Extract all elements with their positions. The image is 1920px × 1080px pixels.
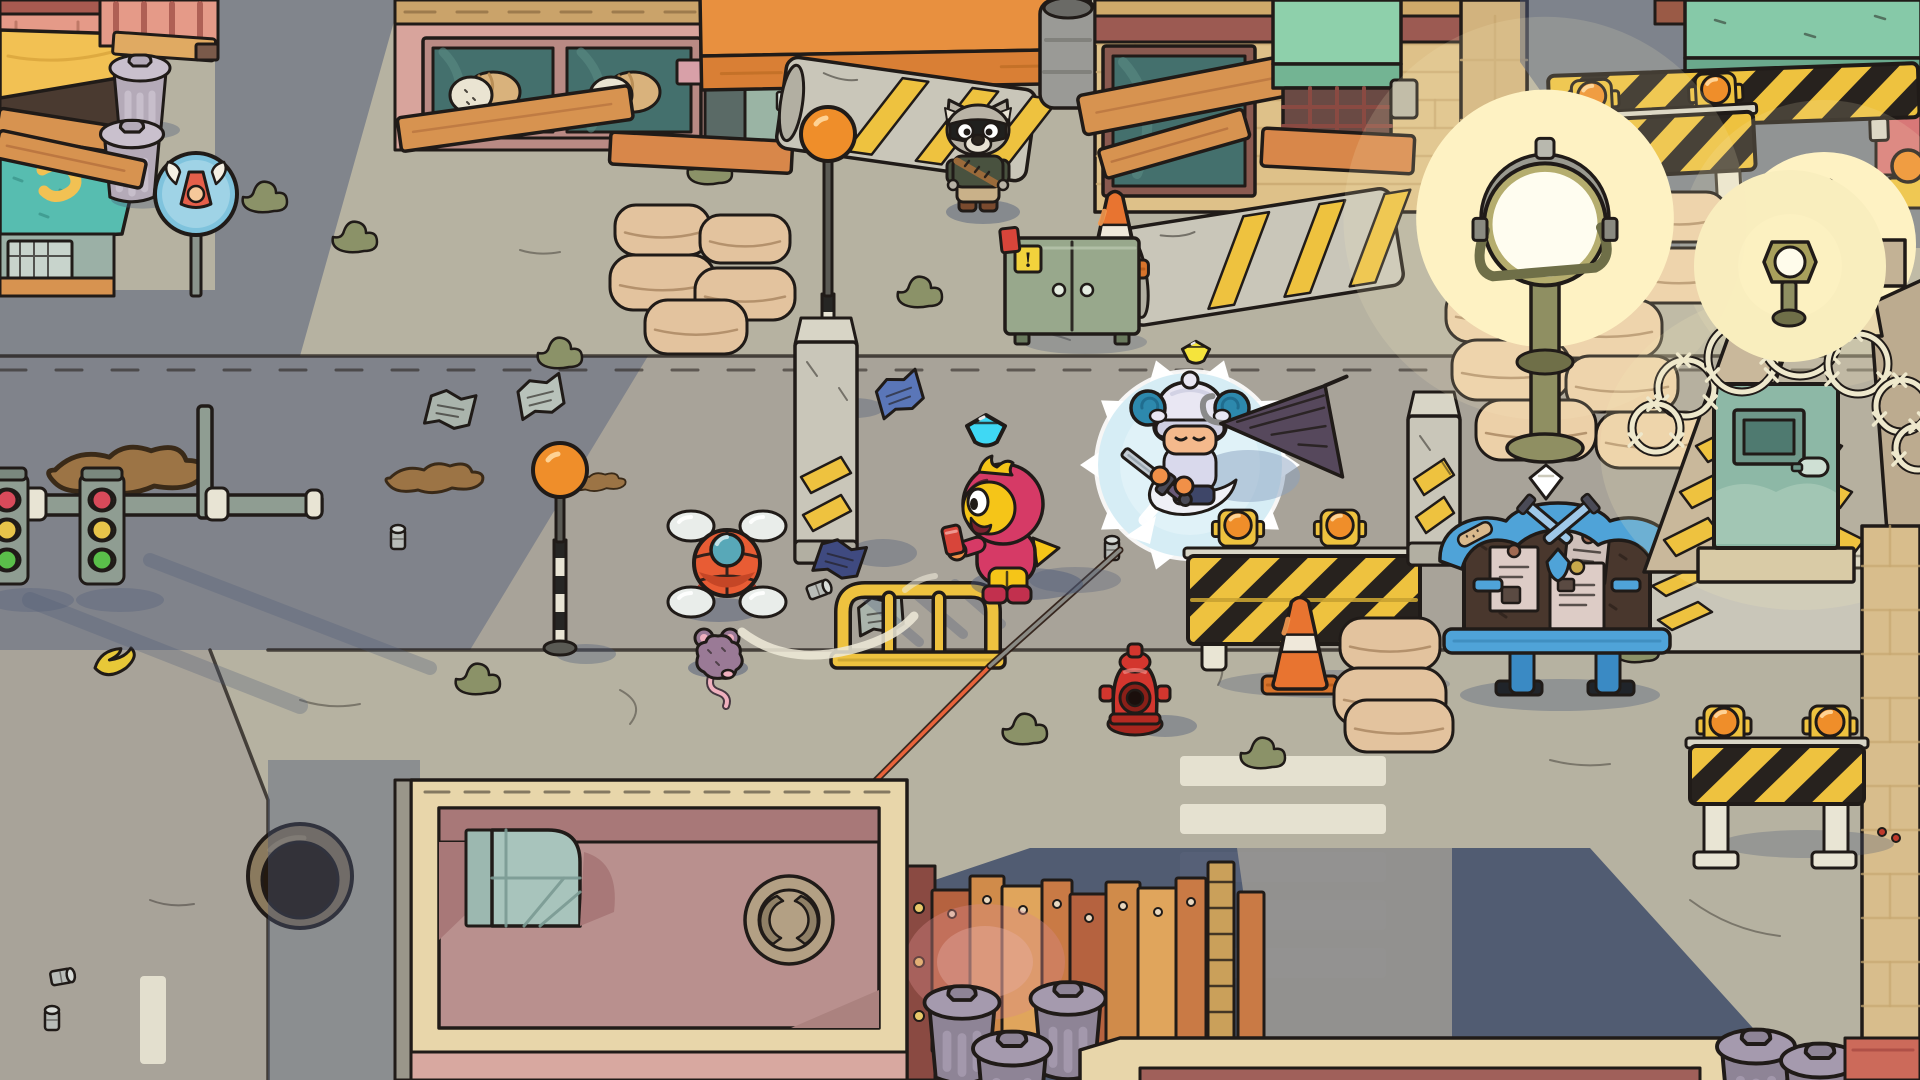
game-scene[interactable]: !: [0, 0, 1920, 1080]
road-vertical: [0, 650, 268, 1080]
red-wall-corner: [1845, 1038, 1920, 1080]
svg-text:!: !: [1024, 247, 1031, 272]
raccoon-npc[interactable]: [945, 100, 1020, 224]
rooftop-edge-bottom: [1080, 1038, 1730, 1080]
electrical-box: !: [1000, 227, 1147, 354]
sandbag-stack: [1334, 618, 1453, 752]
brick-wall-right: [1862, 526, 1920, 1080]
metal-chimney: [1040, 0, 1096, 108]
shack-pink-roof: [100, 0, 218, 61]
road-mark-white: [140, 976, 166, 1064]
rooftop-building: [395, 780, 907, 1080]
game-viewport[interactable]: !: [0, 0, 1920, 1080]
